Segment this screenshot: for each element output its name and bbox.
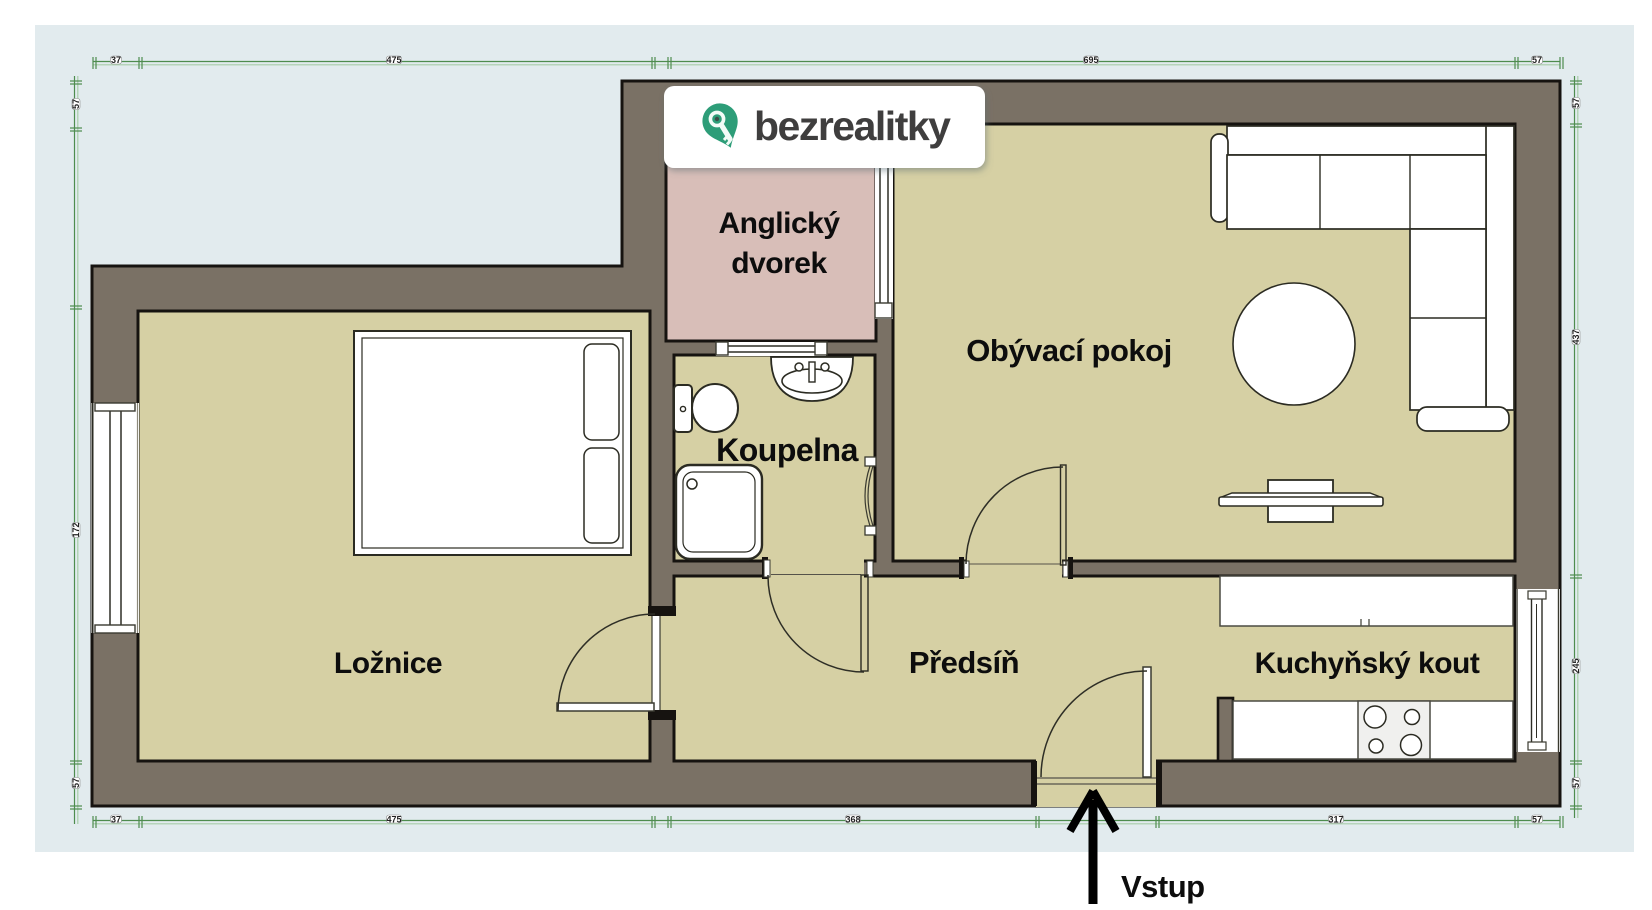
svg-text:245: 245: [1571, 658, 1581, 673]
svg-text:317: 317: [1328, 815, 1343, 825]
svg-text:Koupelna: Koupelna: [716, 432, 858, 468]
svg-text:475: 475: [386, 815, 401, 825]
svg-text:172: 172: [71, 522, 81, 537]
svg-text:695: 695: [1083, 55, 1098, 65]
svg-text:Vstup: Vstup: [1121, 869, 1205, 904]
svg-text:Obývací pokoj: Obývací pokoj: [966, 333, 1171, 368]
svg-text:475: 475: [386, 55, 401, 65]
svg-text:Anglický: Anglický: [718, 207, 840, 240]
svg-text:57: 57: [1571, 98, 1581, 108]
svg-text:37: 37: [111, 55, 121, 65]
svg-text:57: 57: [1571, 778, 1581, 788]
svg-text:57: 57: [71, 99, 81, 109]
svg-text:437: 437: [1571, 329, 1581, 344]
svg-text:bezrealitky: bezrealitky: [754, 103, 951, 149]
svg-text:57: 57: [71, 778, 81, 788]
svg-text:37: 37: [111, 815, 121, 825]
svg-text:dvorek: dvorek: [731, 247, 827, 280]
svg-text:368: 368: [845, 815, 860, 825]
svg-text:Ložnice: Ložnice: [334, 647, 442, 680]
svg-text:57: 57: [1532, 55, 1542, 65]
svg-text:Předsíň: Předsíň: [909, 645, 1019, 680]
svg-text:57: 57: [1532, 815, 1542, 825]
svg-text:Kuchyňský kout: Kuchyňský kout: [1255, 647, 1480, 680]
